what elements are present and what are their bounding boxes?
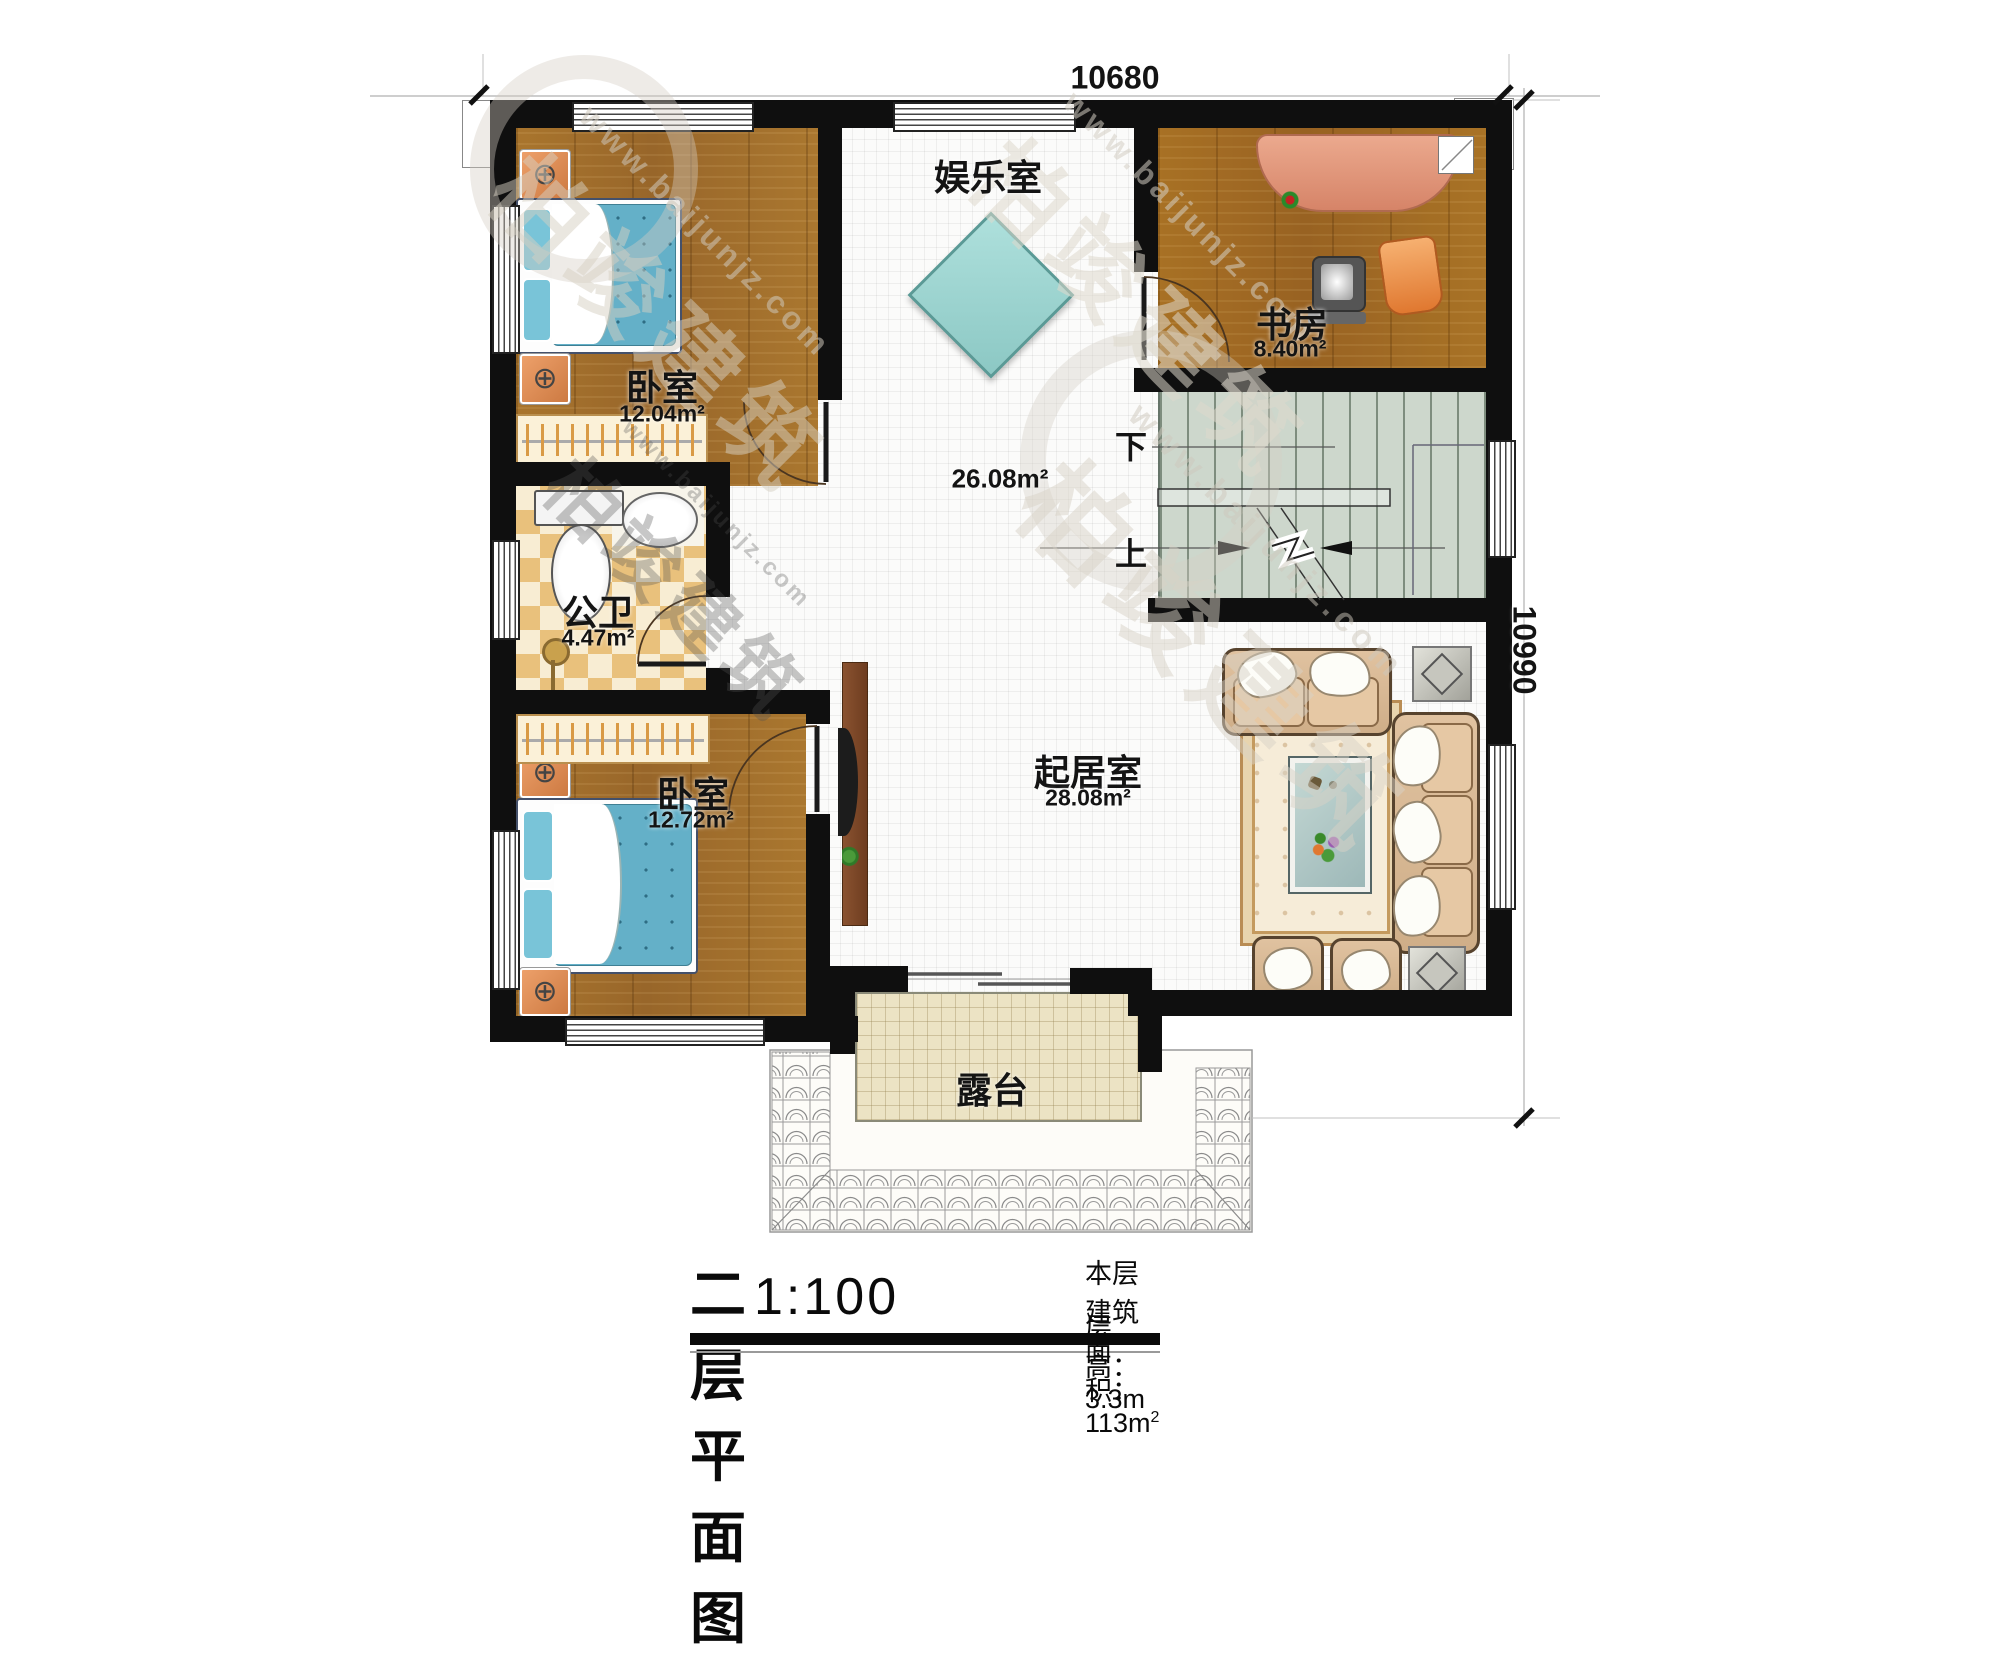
- room-area-study: 8.40m²: [1254, 336, 1327, 363]
- window-left-bathroom: [492, 540, 520, 640]
- pillow: [522, 810, 554, 882]
- sofa-pillow: [1263, 947, 1313, 991]
- wardrobe-bottom: [516, 714, 710, 764]
- plan-title: 二层平面图: [690, 1250, 748, 1655]
- blanket: [552, 204, 614, 344]
- wall-stairs-bottom: [1148, 598, 1486, 622]
- wall-bathroom-right: [706, 668, 730, 690]
- room-area-living: 28.08m²: [1045, 785, 1131, 812]
- dimension-top: 10680: [1071, 60, 1160, 97]
- wall-bathroom-right: [706, 462, 730, 597]
- desk-flower: [1280, 190, 1300, 210]
- stairs-up-label: 上: [1115, 529, 1147, 575]
- coffee-table: [1290, 758, 1370, 892]
- wall-terrace-right: [1070, 968, 1152, 994]
- wall-bathroom-bottom: [490, 690, 830, 714]
- wall-terrace-left: [830, 992, 855, 1054]
- desk-chair: [1377, 234, 1445, 317]
- wall-study-bottom: [1134, 368, 1512, 392]
- blanket: [554, 804, 622, 964]
- pillow: [522, 278, 552, 342]
- screen: [1321, 264, 1353, 300]
- room-area-bedroom-top: 12.04m²: [619, 401, 705, 428]
- stairs-down-label: 下: [1115, 422, 1147, 468]
- room-label-entertainment: 娱乐室: [934, 149, 1042, 201]
- nightstand-lamp: ⊕: [520, 968, 570, 1016]
- plan-scale: 1:100: [754, 1267, 899, 1327]
- staircase-floor: [1158, 392, 1488, 598]
- wall-terrace-left: [830, 966, 908, 992]
- plant: [842, 846, 860, 872]
- corner-notch: [1438, 136, 1474, 174]
- window-right-living: [1488, 744, 1516, 910]
- room-area-bedroom-bottom: 12.72m²: [648, 807, 734, 834]
- window-top-entertainment: [893, 102, 1076, 132]
- hall-area-label: 26.08m²: [952, 464, 1049, 495]
- wall-terrace-right: [1138, 1016, 1162, 1072]
- nightstand-lamp: ⊕: [520, 354, 570, 404]
- lamp: [1421, 653, 1463, 695]
- toilet-tank: [534, 490, 624, 526]
- window-top-bedroom: [572, 102, 754, 132]
- table-decor: [1307, 775, 1322, 790]
- wall-exterior-bottom-right: [1128, 990, 1512, 1016]
- pillow: [522, 208, 552, 272]
- sofa-three-seat: [1392, 712, 1480, 954]
- shower-pole: [551, 660, 555, 690]
- table-decor: [1329, 781, 1337, 789]
- bed-top: [516, 198, 682, 354]
- pillow: [522, 888, 554, 960]
- floor-area-sup: 2: [1151, 1409, 1160, 1426]
- dimension-right: 10990: [1506, 606, 1543, 695]
- nightstand-lamp: ⊕: [520, 150, 570, 200]
- window-left-bedroom-top: [492, 205, 520, 354]
- window-left-bedroom-bottom: [492, 830, 520, 990]
- wall-bedroom-bottom-right: [806, 714, 830, 724]
- sink-basin: [622, 492, 698, 548]
- room-area-bathroom: 4.47m²: [562, 625, 635, 652]
- table-flowers: [1307, 827, 1345, 865]
- wall-bedroom-top-right: [818, 128, 842, 400]
- floor-height-text: 层高：3.3m: [1085, 1306, 1145, 1415]
- sofa-pillow: [1341, 949, 1391, 993]
- wall-bathroom-top: [490, 462, 730, 486]
- room-label-terrace: 露台: [956, 1062, 1028, 1114]
- corner-lamp-table: [1412, 646, 1472, 702]
- wall-study-left: [1134, 128, 1158, 272]
- lamp: [1416, 952, 1458, 994]
- sofa-two-seat: [1222, 648, 1392, 736]
- wall-bedroom-bottom-right: [806, 814, 830, 1016]
- floor-plan-canvas: ⊕ ⊕ ⊕ ⊕: [0, 0, 2000, 1413]
- window-bottom-bedroom: [565, 1018, 765, 1046]
- window-right-stairs: [1488, 440, 1516, 558]
